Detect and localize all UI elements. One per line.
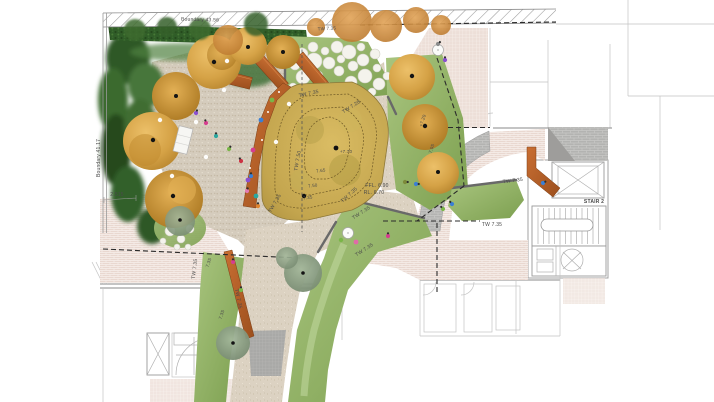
spot-level-dot (334, 146, 339, 151)
annotation-boundary-left: Boundary 41.17 (96, 139, 102, 177)
stair-rail (541, 219, 593, 231)
annotation-stair-2: STAIR 2 (584, 199, 604, 205)
annotation-boundary-top: Boundary 43.56 (181, 17, 219, 24)
chair (354, 240, 359, 245)
parasol-table (433, 45, 444, 56)
annotation-dim-2515: 2.515 (110, 192, 124, 198)
annotation-tw-hedge: TW 7.35 (318, 26, 337, 32)
annotation-ffl: FFL. 6.90 (365, 183, 388, 189)
patio-grid (563, 278, 605, 304)
chair (339, 238, 343, 242)
landscape-plan-drawing: Boundary 43.56Boundary 41.17TW 7.35TW 7.… (0, 0, 714, 402)
annotation-spot-770: +7.70 (340, 149, 353, 154)
bathroom (532, 246, 606, 276)
grey-threshold-paving (248, 330, 286, 376)
annotation-tw-east-boundary: TW 7.35 (482, 222, 502, 228)
annotation-rl: RL. 6.70 (364, 190, 385, 196)
landscape-plan-canvas: Boundary 43.56Boundary 41.17TW 7.35TW 7.… (0, 0, 714, 402)
parasol-table (343, 228, 354, 239)
